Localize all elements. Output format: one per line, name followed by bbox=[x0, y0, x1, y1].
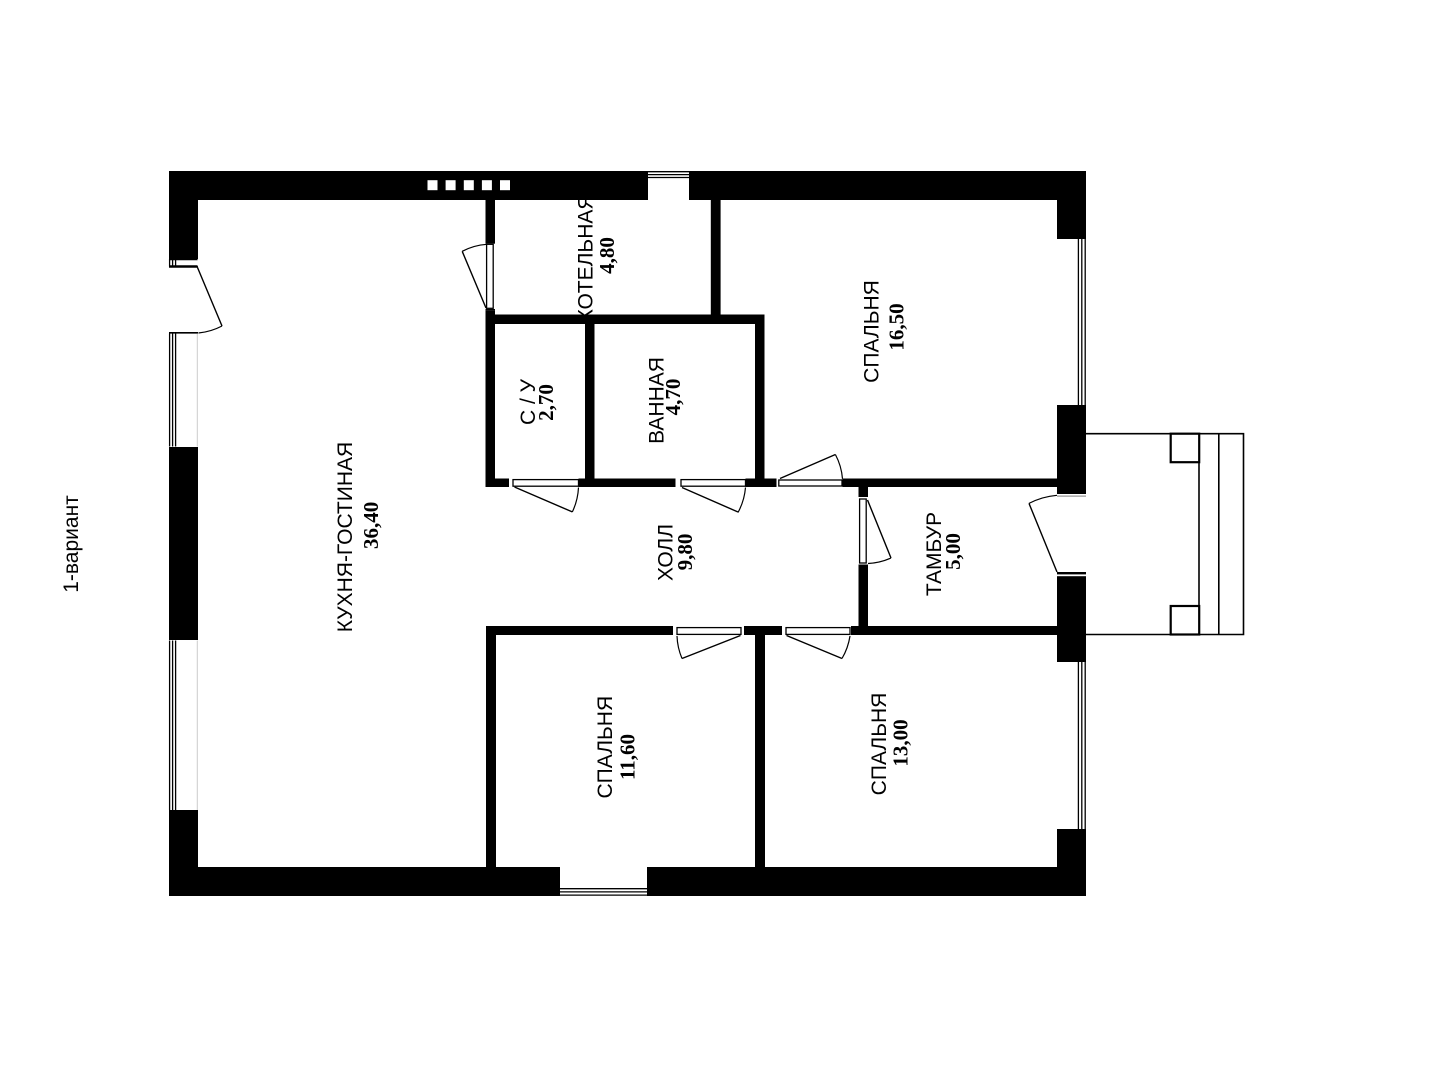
svg-text:9,80: 9,80 bbox=[673, 534, 697, 571]
svg-text:КУХНЯ-ГОСТИНАЯ: КУХНЯ-ГОСТИНАЯ bbox=[334, 442, 357, 632]
svg-text:5,00: 5,00 bbox=[941, 533, 965, 570]
svg-text:4,80: 4,80 bbox=[595, 237, 619, 274]
svg-text:СПАЛЬНЯ: СПАЛЬНЯ bbox=[861, 280, 884, 383]
svg-text:11,60: 11,60 bbox=[616, 734, 640, 780]
svg-text:1-вариант: 1-вариант bbox=[60, 495, 83, 593]
svg-text:16,50: 16,50 bbox=[885, 303, 909, 350]
svg-text:4,70: 4,70 bbox=[661, 379, 685, 416]
svg-text:36,40: 36,40 bbox=[359, 502, 383, 549]
svg-text:2,70: 2,70 bbox=[534, 384, 558, 421]
svg-text:СПАЛЬНЯ: СПАЛЬНЯ bbox=[594, 696, 617, 799]
svg-text:13,00: 13,00 bbox=[889, 719, 913, 766]
